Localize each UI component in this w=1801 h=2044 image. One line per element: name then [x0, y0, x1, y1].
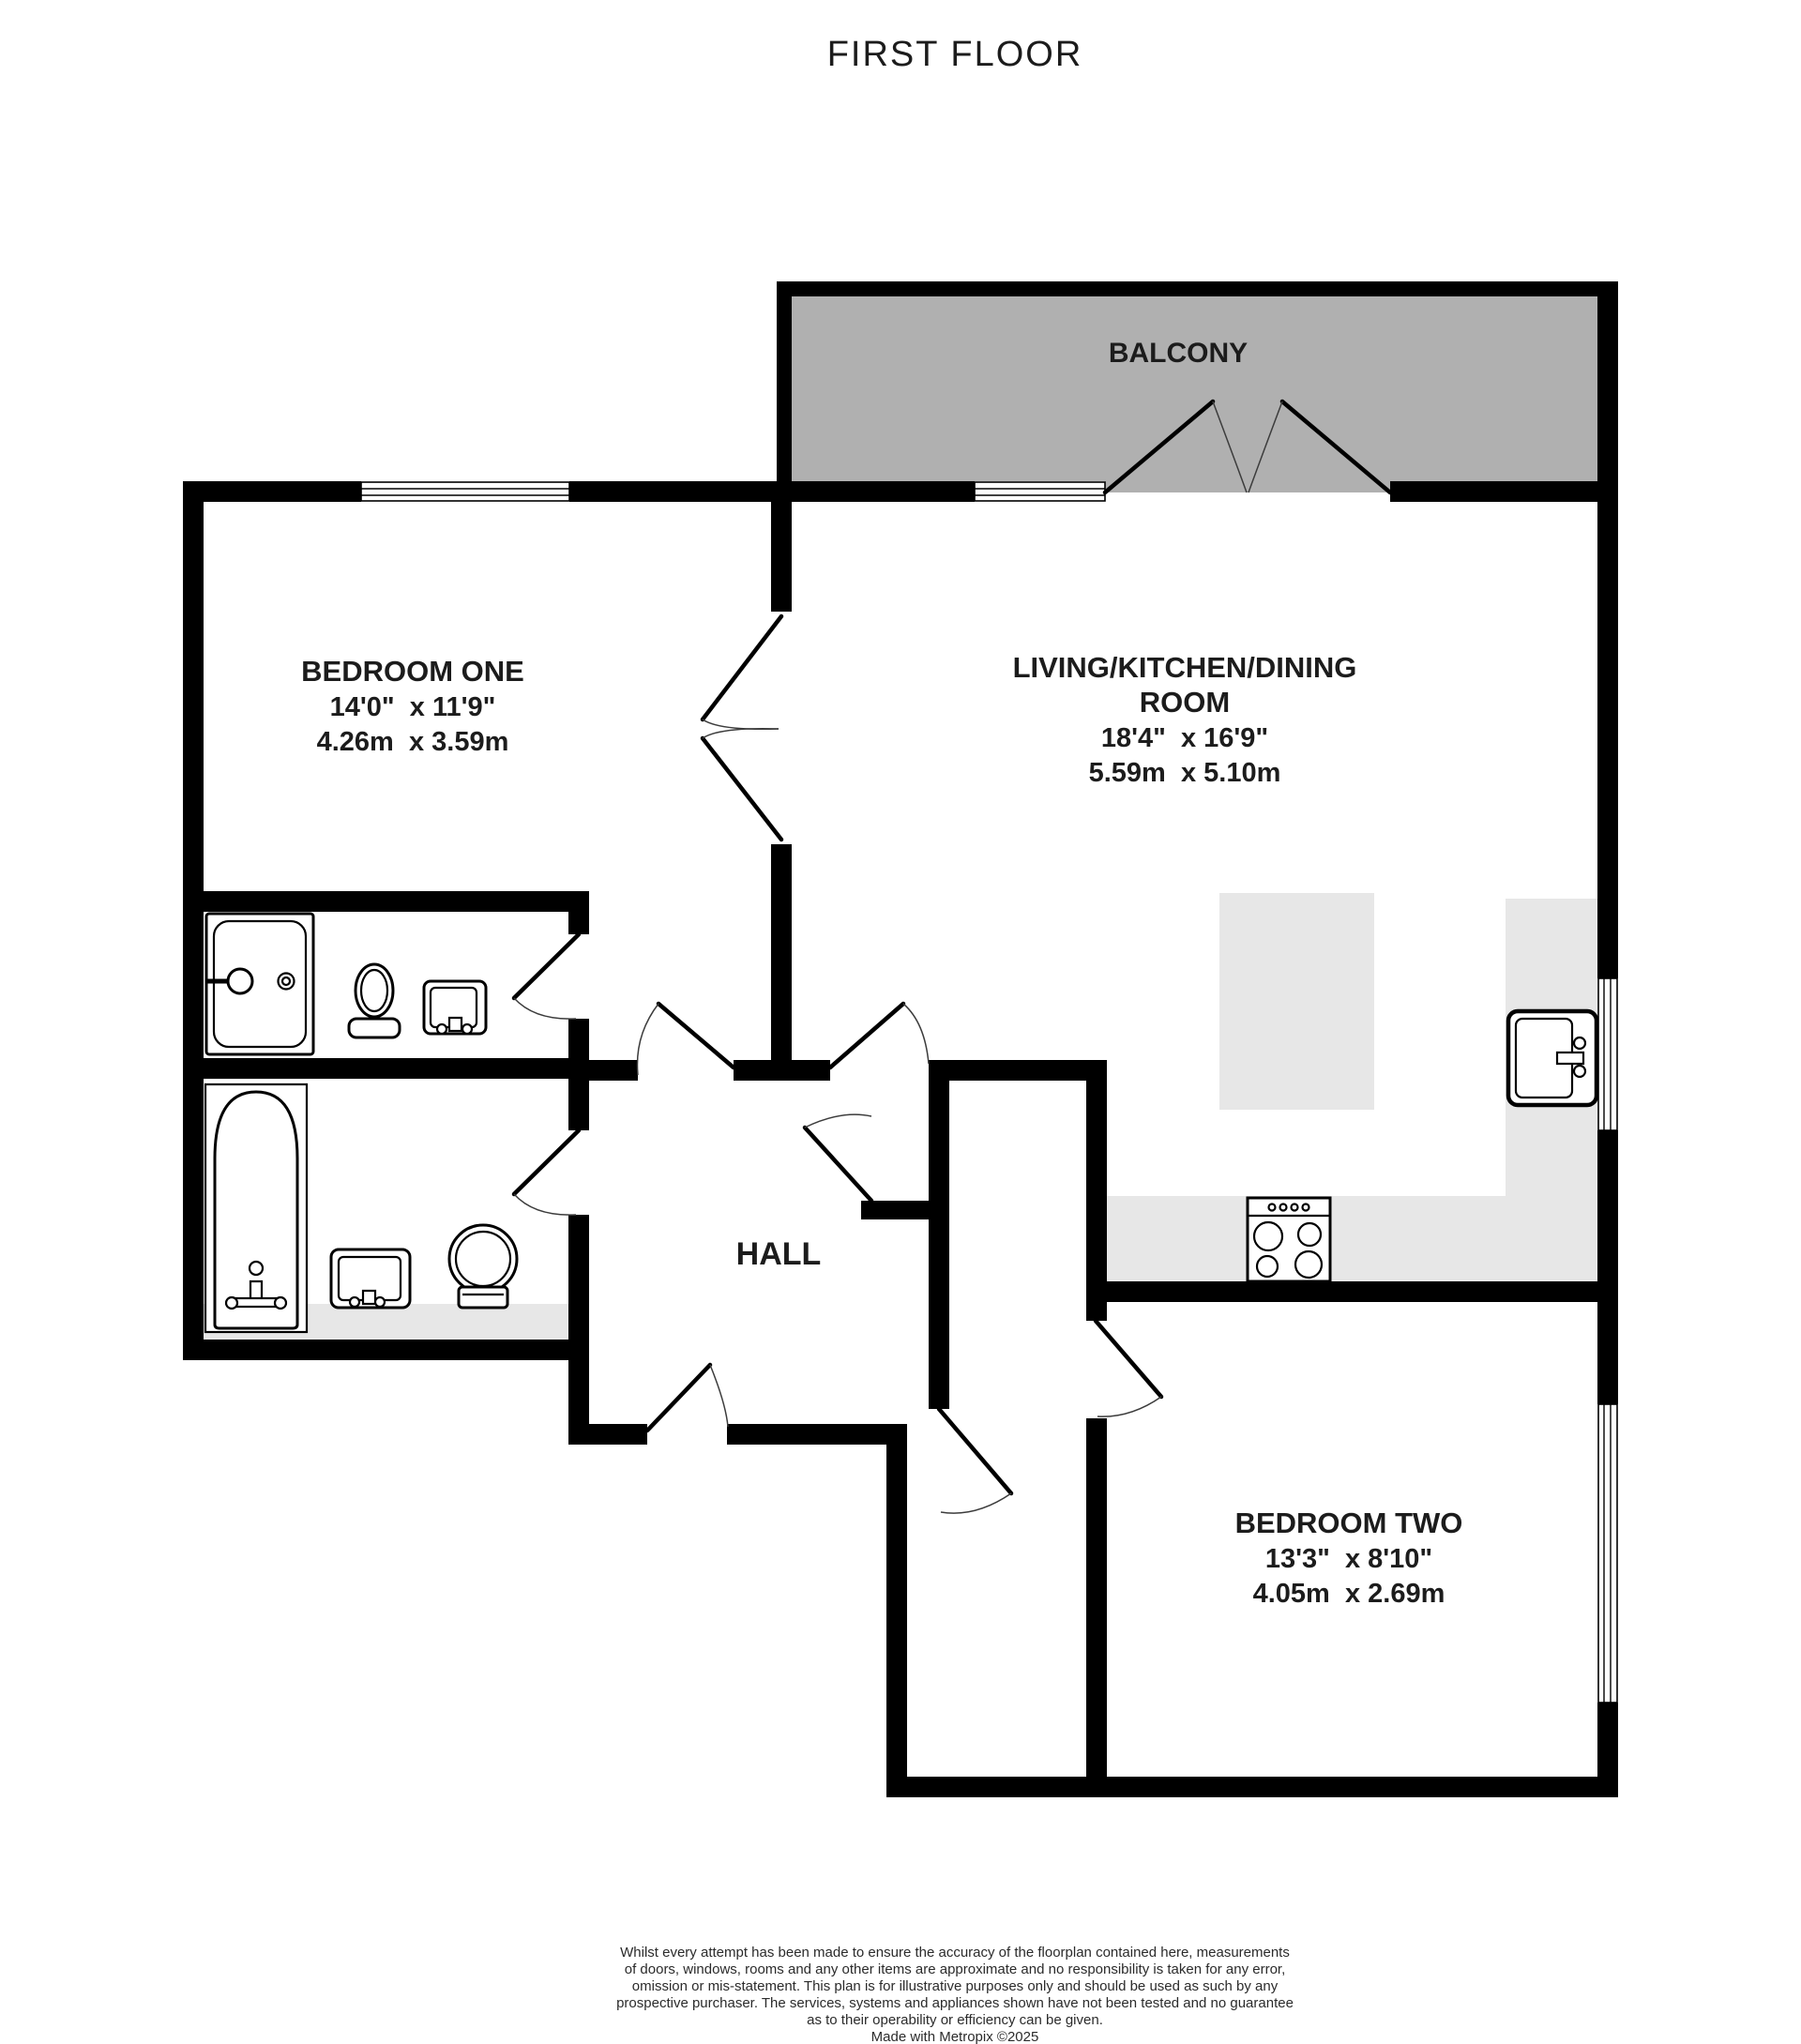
bedroom-one-label: BEDROOM ONE 14'0" x 11'9" 4.26m x 3.59m: [301, 655, 524, 757]
balcony-wall-right: [1597, 281, 1618, 502]
balcony-label: BALCONY: [1109, 338, 1248, 369]
wall-hall-bottom-right: [727, 1424, 907, 1445]
door-hall-living: [830, 1004, 929, 1067]
bathtub-icon: [205, 1084, 307, 1332]
wall-kitchen-bottom: [1105, 1281, 1597, 1302]
wall-hall-recess: [929, 1081, 949, 1409]
bedroom-two-imperial: 13'3" x 8'10": [1265, 1544, 1432, 1574]
living-name-line1: LIVING/KITCHEN/DINING: [1013, 651, 1357, 684]
disclaimer-line: omission or mis-statement. This plan is …: [632, 1978, 1279, 1994]
wall-hall-bottom-left: [568, 1424, 647, 1445]
toilet-icon: [349, 964, 400, 1037]
disclaimer-line: prospective purchaser. The services, sys…: [616, 1995, 1294, 2011]
wall-bedroom2-left: [1086, 1418, 1107, 1777]
balcony-floor-door-gap: [1105, 481, 1390, 492]
living-imperial: 18'4" x 16'9": [1101, 723, 1268, 753]
door-bathroom: [514, 1130, 579, 1215]
living-label: LIVING/KITCHEN/DINING ROOM 18'4" x 16'9"…: [1013, 651, 1357, 788]
balcony-wall-left: [777, 281, 792, 481]
wall-top-bedroom1-right: [569, 481, 793, 502]
disclaimer-line: Whilst every attempt has been made to en…: [620, 1945, 1290, 1961]
balcony-floor: [792, 296, 1597, 481]
toilet-icon: [449, 1225, 517, 1308]
bedroom-two-label: BEDROOM TWO 13'3" x 8'10" 4.05m x 2.69m: [1235, 1507, 1463, 1609]
kitchen-island-counter: [1219, 893, 1374, 1110]
stove-icon: [1248, 1198, 1330, 1281]
wall-plan-bottom: [886, 1777, 1618, 1797]
kitchen: [1107, 893, 1597, 1281]
door-hall-corridor: [939, 1409, 1011, 1513]
balcony-wall-top: [777, 281, 1618, 296]
wall-window-cap: [967, 481, 975, 502]
door-hall-landing: [637, 1004, 734, 1075]
wall-kitchen-divider: [1086, 1060, 1107, 1321]
window-living: [975, 482, 1105, 501]
floorplan-page: FIRST FLOOR BALCONY: [0, 0, 1801, 2044]
bedroom-one-metric: 4.26m x 3.59m: [317, 727, 509, 757]
kitchen-counter-bottom: [1107, 1196, 1597, 1281]
page-title: FIRST FLOOR: [827, 35, 1083, 74]
washbasin-icon: [331, 1249, 410, 1308]
balcony: BALCONY: [777, 281, 1618, 502]
living-metric: 5.59m x 5.10m: [1089, 758, 1281, 788]
bedroom-two-metric: 4.05m x 2.69m: [1253, 1579, 1445, 1609]
shower-room: [206, 914, 486, 1054]
wall-outer-right-mid: [1597, 1130, 1618, 1404]
kitchen-sink-icon: [1508, 1011, 1597, 1105]
bathroom: [204, 1084, 568, 1340]
bedroom-one-name: BEDROOM ONE: [301, 655, 524, 688]
wall-bath-right-stub1: [568, 891, 589, 934]
room-labels: BEDROOM ONE 14'0" x 11'9" 4.26m x 3.59m …: [301, 651, 1462, 1609]
wall-hall-top-right: [929, 1060, 1086, 1081]
double-door-bedroom1: [703, 616, 781, 840]
wall-top-living-right: [1390, 481, 1618, 502]
door-hall-cupboard: [805, 1114, 871, 1201]
wall-outer-right-upper: [1597, 502, 1618, 978]
wall-top-bedroom1-left: [183, 481, 361, 502]
bedroom-one-imperial: 14'0" x 11'9": [330, 692, 496, 722]
shower-icon: [206, 914, 313, 1054]
window-bedroom2: [1598, 1404, 1617, 1703]
wall-outer-left: [183, 481, 204, 1360]
wall-hall-top-left: [589, 1060, 638, 1081]
window-kitchen: [1598, 978, 1617, 1130]
wall-corridor-left: [886, 1424, 907, 1777]
wall-bathroom-bottom: [183, 1340, 589, 1360]
door-hall-entrance: [647, 1365, 728, 1431]
floorplan-svg: FIRST FLOOR BALCONY: [0, 0, 1801, 2044]
washbasin-icon: [424, 981, 486, 1034]
window-bedroom1: [361, 482, 569, 501]
wall-top-living-left: [793, 481, 967, 502]
bedroom-two-name: BEDROOM TWO: [1235, 1507, 1463, 1539]
wall-bedroom1-bottom: [183, 891, 589, 912]
disclaimer-line: of doors, windows, rooms and any other i…: [625, 1961, 1286, 1977]
living-name-line2: ROOM: [1140, 686, 1230, 719]
wall-divider-bed1-upper: [771, 502, 792, 612]
footer-disclaimer: Whilst every attempt has been made to en…: [616, 1945, 1294, 2044]
wall-divider-foot: [734, 1060, 830, 1081]
wall-bathrooms-divider: [183, 1058, 589, 1079]
disclaimer-line: as to their operability or efficiency ca…: [807, 2012, 1103, 2028]
hall-name: HALL: [736, 1236, 822, 1272]
wall-cupboard-bottom: [861, 1201, 949, 1219]
wall-bath-right-lower: [568, 1215, 589, 1445]
door-bedroom2: [1096, 1321, 1161, 1416]
door-shower-room: [514, 934, 579, 1019]
wall-divider-bed1-lower: [771, 844, 792, 1081]
credit-line: Made with Metropix ©2025: [871, 2029, 1039, 2044]
